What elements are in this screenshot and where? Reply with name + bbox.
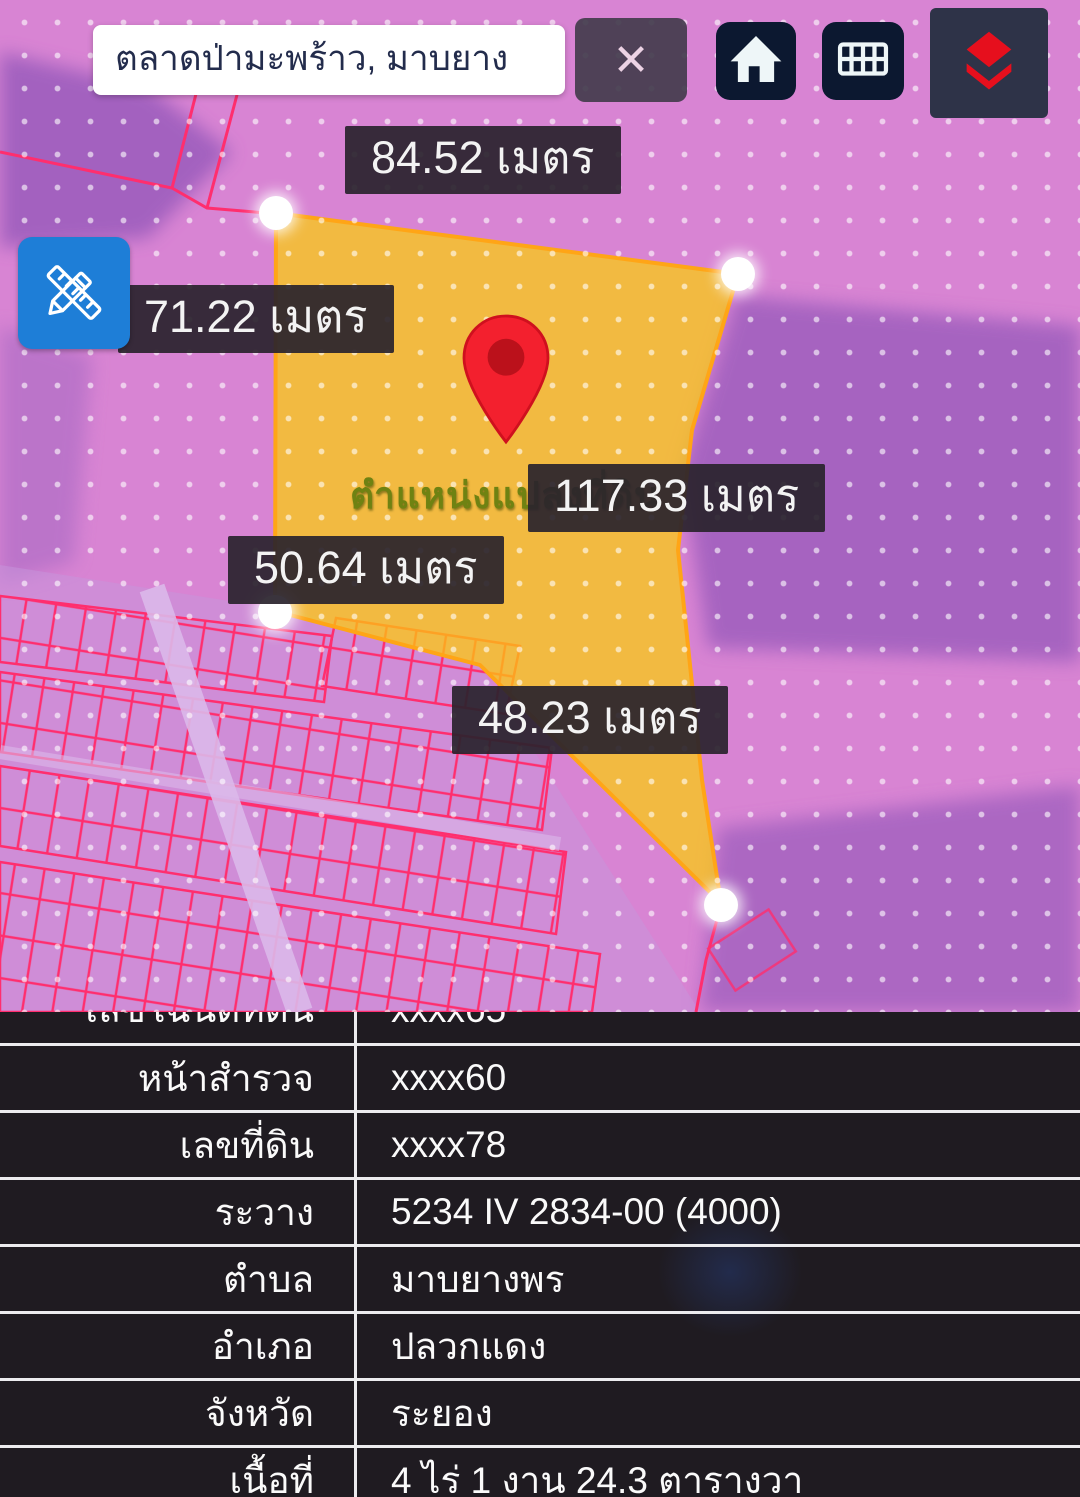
table-row: ระวาง 5234 IV 2834-00 (4000) bbox=[0, 1177, 1080, 1244]
close-icon: ✕ bbox=[613, 35, 650, 86]
measurement-label-lower-left: 50.64 เมตร bbox=[228, 536, 504, 604]
parcel-vertex-marker[interactable] bbox=[721, 257, 755, 291]
home-button[interactable] bbox=[716, 22, 796, 100]
layers-button[interactable] bbox=[930, 8, 1048, 118]
land-parcel-app: ตำแหน่งแปลงที่ดิน 84.52 เมตร 71.22 เมตร … bbox=[0, 0, 1080, 1497]
table-row: จังหวัด ระยอง bbox=[0, 1378, 1080, 1445]
row-label: จังหวัด bbox=[0, 1381, 357, 1445]
table-row: เลขโฉนดที่ดิน xxxx65 bbox=[0, 1012, 1080, 1043]
location-pin-icon[interactable] bbox=[458, 310, 554, 450]
grid-view-button[interactable] bbox=[822, 22, 904, 100]
row-label: เลขโฉนดที่ดิน bbox=[0, 1012, 357, 1043]
measurement-label-top: 84.52 เมตร bbox=[345, 126, 621, 194]
parcel-vertex-marker[interactable] bbox=[704, 888, 738, 922]
row-label: เนื้อที่ bbox=[0, 1448, 357, 1497]
map-canvas[interactable]: ตำแหน่งแปลงที่ดิน 84.52 เมตร 71.22 เมตร … bbox=[0, 0, 1080, 1012]
table-row: หน้าสำรวจ xxxx60 bbox=[0, 1043, 1080, 1110]
row-value: xxxx60 bbox=[357, 1046, 1080, 1110]
row-label: อำเภอ bbox=[0, 1314, 357, 1378]
measurement-label-upper-left: 71.22 เมตร bbox=[118, 285, 394, 353]
measurement-label-right: 117.33 เมตร bbox=[528, 464, 825, 532]
parcel-vertex-marker[interactable] bbox=[259, 196, 293, 230]
row-value: xxxx78 bbox=[357, 1113, 1080, 1177]
measurement-label-bottom: 48.23 เมตร bbox=[452, 686, 728, 754]
measure-button[interactable] bbox=[18, 237, 130, 349]
table-row: อำเภอ ปลวกแดง bbox=[0, 1311, 1080, 1378]
row-label: เลขที่ดิน bbox=[0, 1113, 357, 1177]
home-icon bbox=[727, 30, 785, 93]
row-label: ตำบล bbox=[0, 1247, 357, 1311]
row-value: xxxx65 bbox=[357, 1012, 1080, 1043]
parcel-info-table: เลขโฉนดที่ดิน xxxx65 หน้าสำรวจ xxxx60 เล… bbox=[0, 1012, 1080, 1497]
row-value: 4 ไร่ 1 งาน 24.3 ตารางวา bbox=[357, 1448, 1080, 1497]
clear-search-button[interactable]: ✕ bbox=[575, 18, 687, 102]
row-label: หน้าสำรวจ bbox=[0, 1046, 357, 1110]
table-row: เลขที่ดิน xxxx78 bbox=[0, 1110, 1080, 1177]
table-row: ตำบล มาบยางพร bbox=[0, 1244, 1080, 1311]
pencil-ruler-icon bbox=[37, 254, 111, 333]
search-input[interactable] bbox=[93, 25, 565, 95]
layers-icon bbox=[952, 24, 1026, 103]
grid-icon bbox=[833, 30, 893, 93]
row-value: ปลวกแดง bbox=[357, 1314, 1080, 1378]
row-value: 5234 IV 2834-00 (4000) bbox=[357, 1180, 1080, 1244]
row-label: ระวาง bbox=[0, 1180, 357, 1244]
row-value: ระยอง bbox=[357, 1381, 1080, 1445]
row-value: มาบยางพร bbox=[357, 1247, 1080, 1311]
table-row: เนื้อที่ 4 ไร่ 1 งาน 24.3 ตารางวา bbox=[0, 1445, 1080, 1497]
